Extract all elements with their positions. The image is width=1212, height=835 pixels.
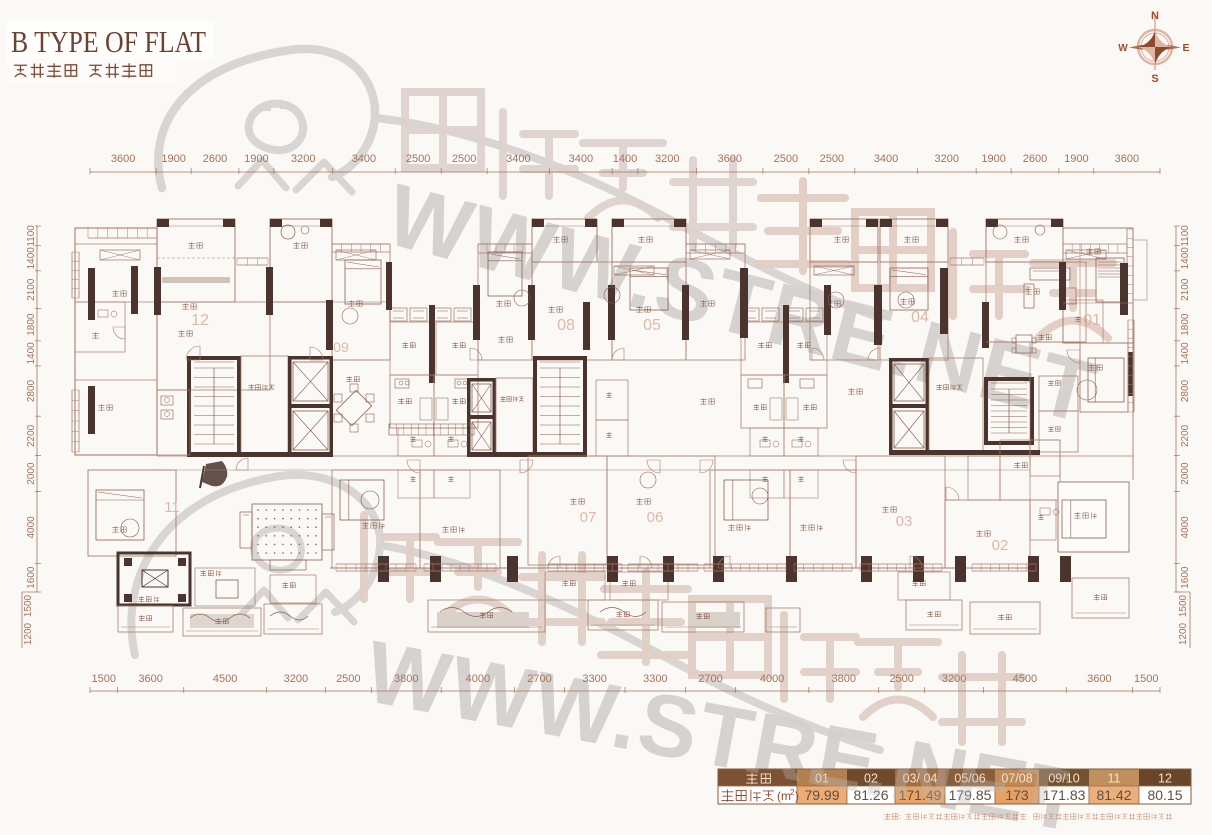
svg-text:1400: 1400 xyxy=(1180,342,1191,365)
svg-text:3300: 3300 xyxy=(643,673,667,685)
svg-text:1100: 1100 xyxy=(26,225,37,247)
svg-text:1900: 1900 xyxy=(1064,153,1088,165)
svg-text:1900: 1900 xyxy=(981,153,1005,165)
svg-text:02: 02 xyxy=(992,537,1009,554)
svg-text:S: S xyxy=(1151,73,1158,85)
svg-text:11: 11 xyxy=(1108,772,1121,786)
svg-text:2500: 2500 xyxy=(336,673,360,685)
svg-text:06: 06 xyxy=(647,509,664,526)
svg-text:01: 01 xyxy=(1083,312,1101,329)
svg-text:2600: 2600 xyxy=(203,153,227,165)
svg-text::: : xyxy=(899,814,901,821)
svg-text:1500: 1500 xyxy=(1178,594,1189,617)
svg-text:1600: 1600 xyxy=(26,566,37,589)
svg-text:3600: 3600 xyxy=(1115,153,1139,165)
svg-text:03: 03 xyxy=(896,513,913,530)
svg-text:2800: 2800 xyxy=(26,379,37,402)
svg-text:1400: 1400 xyxy=(1180,247,1191,270)
svg-text:2700: 2700 xyxy=(527,673,551,685)
svg-text:3800: 3800 xyxy=(832,673,856,685)
svg-text:2800: 2800 xyxy=(1180,379,1191,402)
svg-text:05: 05 xyxy=(643,317,661,334)
svg-text:2000: 2000 xyxy=(26,462,37,485)
svg-text:3600: 3600 xyxy=(718,153,742,165)
svg-text:2700: 2700 xyxy=(698,673,722,685)
svg-text:4500: 4500 xyxy=(1013,673,1037,685)
svg-text:3200: 3200 xyxy=(291,153,315,165)
svg-text:3400: 3400 xyxy=(874,153,898,165)
svg-text:2500: 2500 xyxy=(774,153,798,165)
svg-text:3400: 3400 xyxy=(569,153,593,165)
svg-text:3200: 3200 xyxy=(942,673,966,685)
svg-text:3400: 3400 xyxy=(506,153,530,165)
svg-text:1500: 1500 xyxy=(23,594,34,617)
svg-text:3600: 3600 xyxy=(111,153,135,165)
svg-text:B TYPE OF FLAT: B TYPE OF FLAT xyxy=(11,24,206,59)
svg-text:4000: 4000 xyxy=(760,673,784,685)
svg-text:N: N xyxy=(1151,10,1159,22)
svg-text:3800: 3800 xyxy=(394,673,418,685)
svg-text:04: 04 xyxy=(911,309,929,326)
svg-text:1600: 1600 xyxy=(1180,566,1191,589)
svg-text:2100: 2100 xyxy=(26,278,37,301)
svg-text:2100: 2100 xyxy=(1180,278,1191,301)
svg-text:1200: 1200 xyxy=(23,622,34,645)
svg-text:2500: 2500 xyxy=(889,673,913,685)
svg-text:2200: 2200 xyxy=(1180,424,1191,447)
svg-text:3200: 3200 xyxy=(284,673,308,685)
svg-text:80.15: 80.15 xyxy=(1147,787,1182,803)
svg-text:4500: 4500 xyxy=(213,673,237,685)
svg-text:1900: 1900 xyxy=(244,153,268,165)
svg-text:4000: 4000 xyxy=(1180,516,1191,539)
svg-text:2000: 2000 xyxy=(1180,462,1191,485)
svg-text:2200: 2200 xyxy=(26,424,37,447)
svg-text:1400: 1400 xyxy=(26,247,37,270)
svg-text:3600: 3600 xyxy=(1087,673,1111,685)
svg-text:2500: 2500 xyxy=(452,153,476,165)
svg-text:2500: 2500 xyxy=(406,153,430,165)
svg-text:1400: 1400 xyxy=(613,153,637,165)
svg-text:2600: 2600 xyxy=(1023,153,1047,165)
svg-text:09: 09 xyxy=(333,339,349,355)
svg-text:11: 11 xyxy=(164,499,180,516)
svg-text:3600: 3600 xyxy=(138,673,162,685)
svg-text:12: 12 xyxy=(191,312,209,329)
svg-text:1200: 1200 xyxy=(1178,622,1189,645)
svg-text:1800: 1800 xyxy=(26,313,37,336)
svg-text:4000: 4000 xyxy=(466,673,490,685)
svg-text:07: 07 xyxy=(580,509,597,526)
svg-text:4000: 4000 xyxy=(26,516,37,539)
svg-text:3400: 3400 xyxy=(352,153,376,165)
svg-text:3200: 3200 xyxy=(934,153,958,165)
svg-text:1100: 1100 xyxy=(1180,225,1191,247)
svg-text:3200: 3200 xyxy=(655,153,679,165)
svg-text:12: 12 xyxy=(1158,772,1172,786)
svg-text:1500: 1500 xyxy=(1134,673,1158,685)
svg-text:1800: 1800 xyxy=(1180,313,1191,336)
svg-text:1400: 1400 xyxy=(26,342,37,365)
svg-text:W: W xyxy=(1118,43,1128,54)
svg-text:E: E xyxy=(1182,42,1189,54)
svg-text:08: 08 xyxy=(557,317,575,334)
svg-text:1500: 1500 xyxy=(92,673,116,685)
svg-text:2500: 2500 xyxy=(820,153,844,165)
svg-text:3300: 3300 xyxy=(582,673,606,685)
svg-text:1900: 1900 xyxy=(161,153,185,165)
svg-text:81.42: 81.42 xyxy=(1096,787,1131,803)
